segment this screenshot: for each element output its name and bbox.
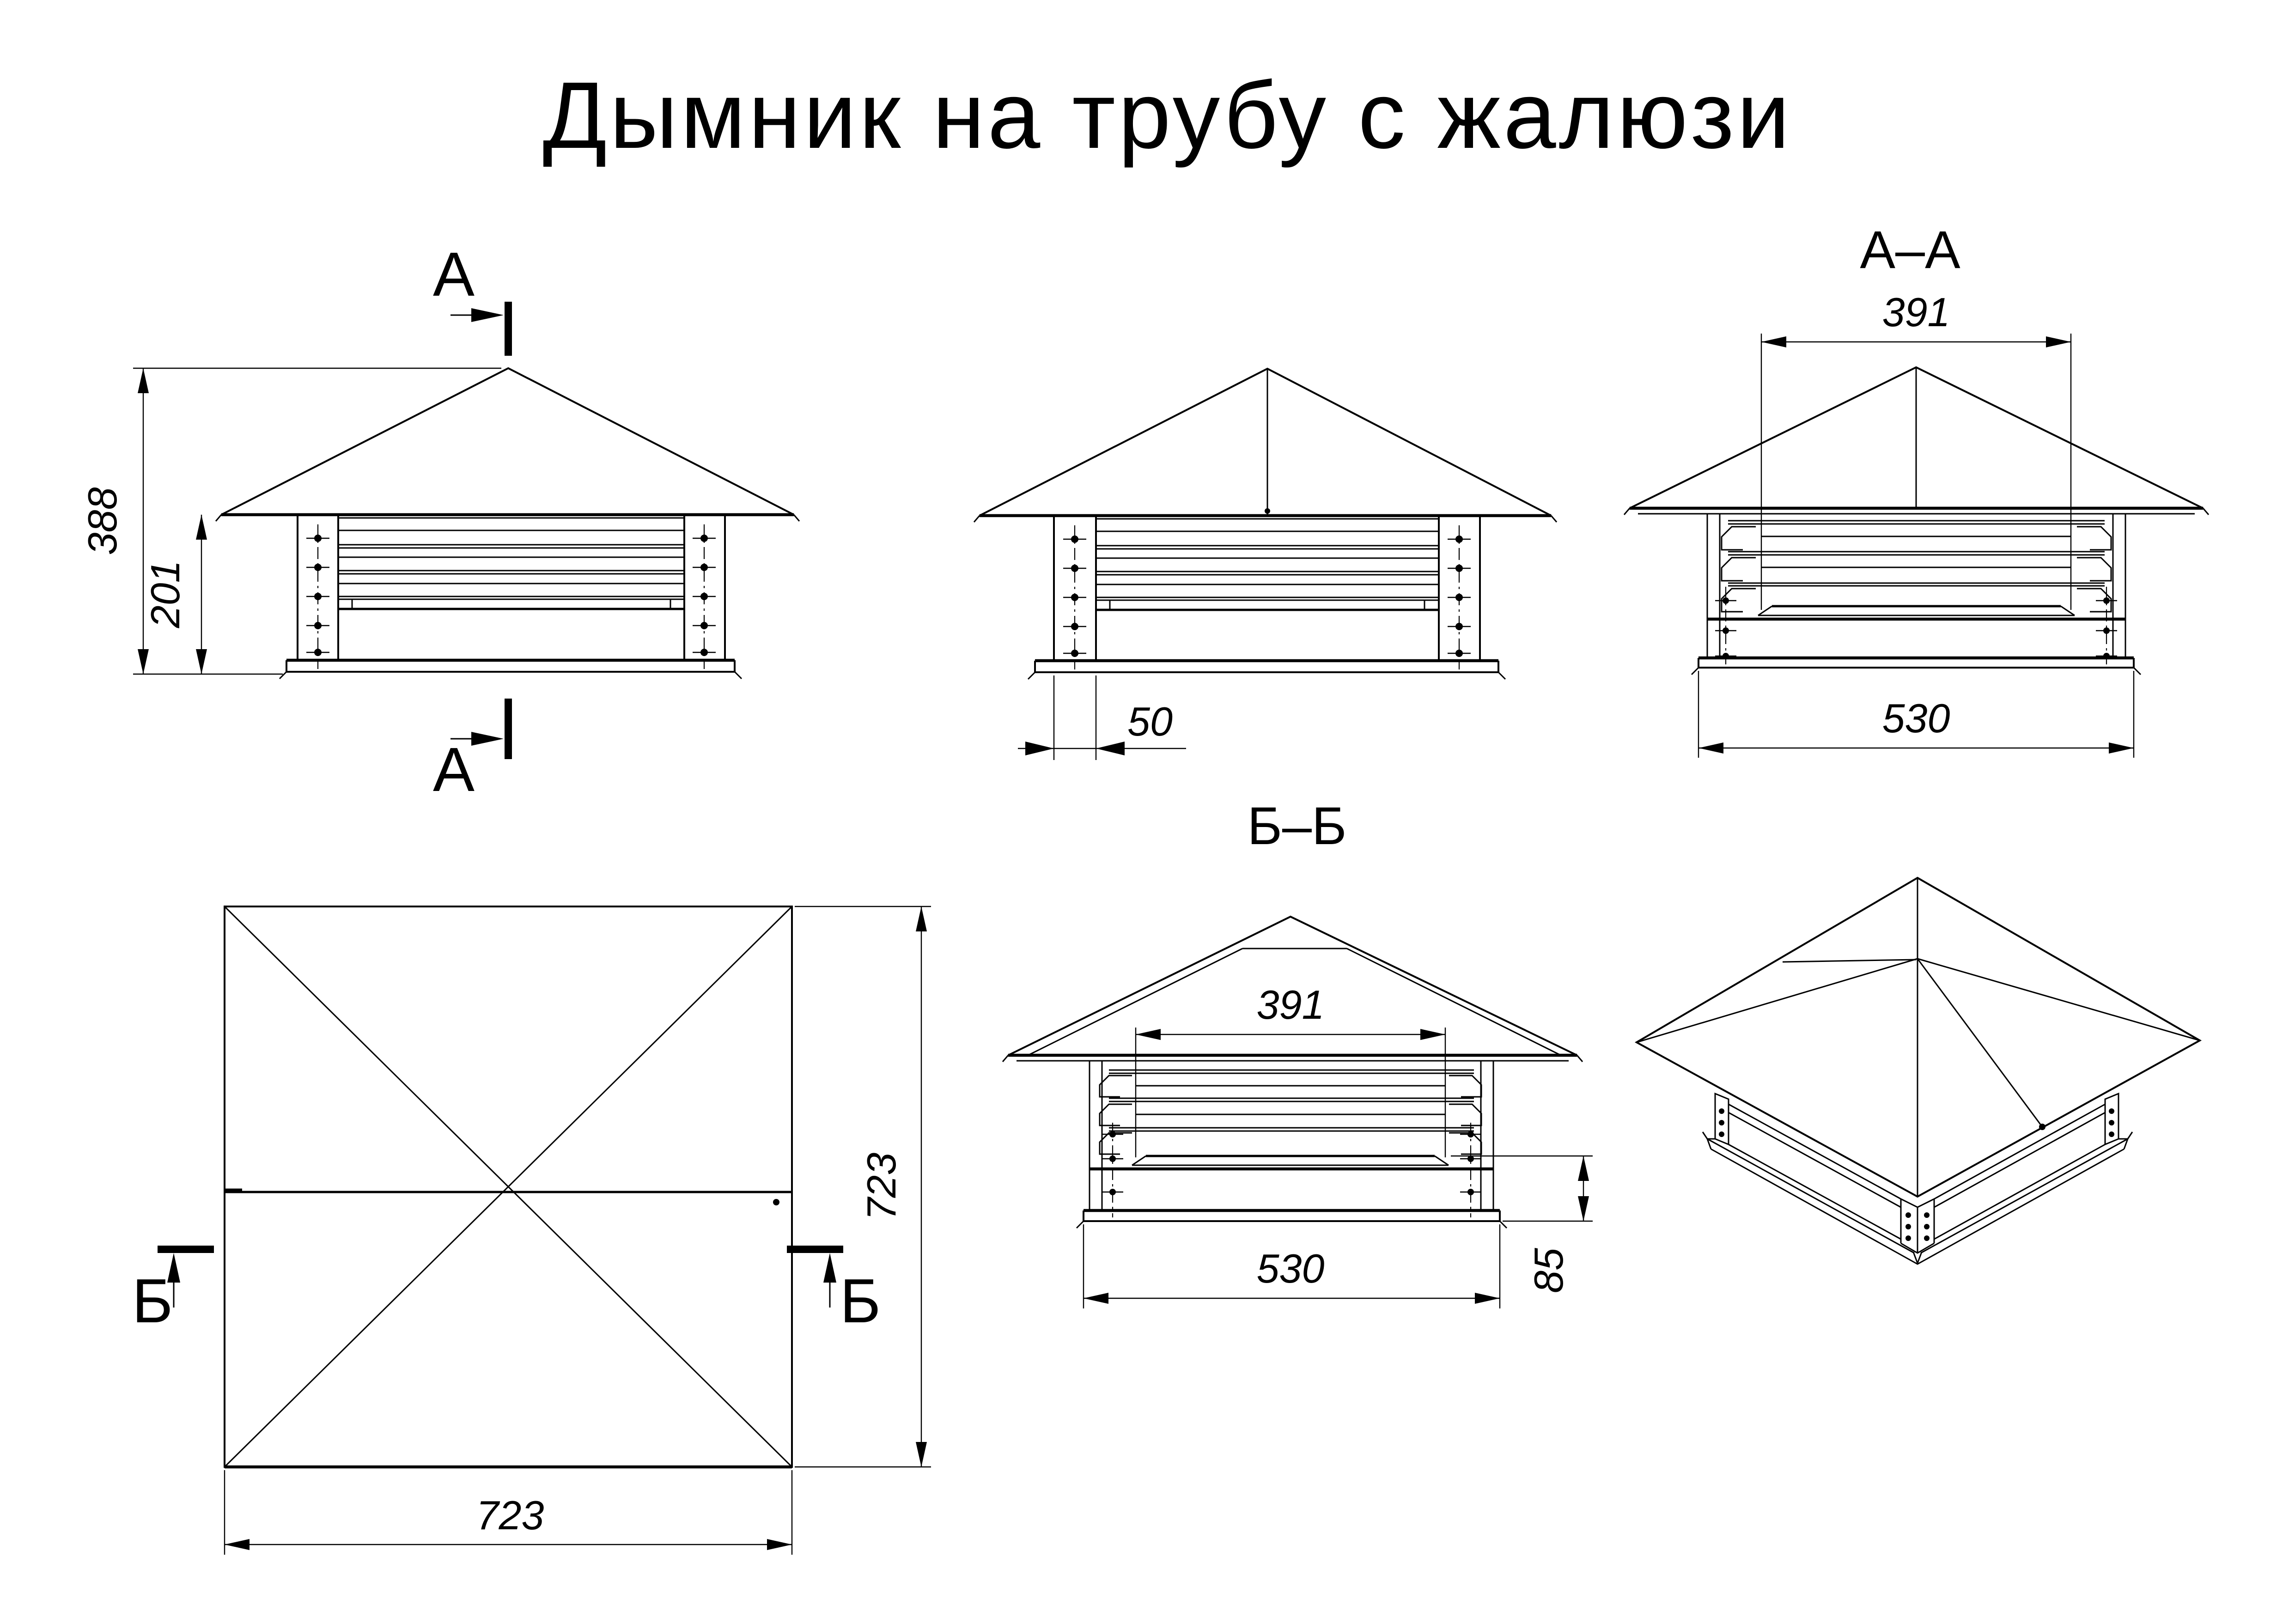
dim-overall-height: 388 — [79, 487, 125, 555]
page-title: Дымник на трубу с жалюзи — [543, 62, 1793, 168]
iso-roof — [1637, 878, 2200, 1197]
section-letter-a-bottom: А — [433, 735, 475, 804]
dimension-530-bb: 530 — [1084, 1224, 1500, 1308]
dim-body-height: 201 — [142, 560, 188, 629]
dim-plan-height: 723 — [858, 1153, 904, 1221]
section-bb-view: Б–Б — [1003, 797, 1593, 1308]
drawing-canvas: Дымник на трубу с жалюзи — [0, 0, 2295, 1624]
dimension-530-aa: 530 — [1698, 671, 2134, 758]
aa-roof — [1624, 367, 2209, 515]
front-louvers — [338, 518, 684, 609]
section-arrow-icon — [471, 732, 504, 746]
dimension-723-bottom: 723 — [225, 1470, 792, 1555]
bb-louver-section — [1090, 1061, 1493, 1210]
technical-drawing-sheet: Дымник на трубу с жалюзи — [0, 0, 2295, 1624]
side-base — [1028, 661, 1505, 679]
front-posts — [298, 515, 725, 660]
section-mark-b-right: Б — [787, 1249, 881, 1336]
dim-plan-width: 723 — [476, 1492, 544, 1538]
side-posts — [1054, 516, 1480, 661]
bb-base — [1077, 1210, 1507, 1228]
front-base — [280, 660, 742, 679]
front-roof — [216, 368, 799, 521]
side-view: 50 — [974, 369, 1557, 760]
dim-base-width-bb: 530 — [1257, 1246, 1325, 1291]
section-aa-title: А–А — [1860, 220, 1960, 280]
aa-base — [1692, 658, 2141, 675]
aa-louver-section — [1707, 514, 2125, 658]
side-roof — [974, 369, 1557, 522]
isometric-view — [1637, 878, 2200, 1264]
section-aa-view: А–А — [1624, 220, 2209, 758]
dimension-723-right: 723 — [795, 906, 931, 1467]
dimension-50: 50 — [1018, 675, 1186, 760]
section-mark-b-left: Б — [132, 1249, 214, 1336]
section-letter-b-left: Б — [132, 1266, 173, 1336]
plan-view: Б Б 723 723 — [132, 906, 931, 1555]
plan-outline — [225, 906, 792, 1467]
section-arrow-icon — [471, 308, 504, 322]
dim-skirt-height: 85 — [1526, 1247, 1571, 1293]
dim-post-width: 50 — [1127, 699, 1173, 744]
section-bb-title: Б–Б — [1248, 797, 1347, 856]
dim-inner-width-aa: 391 — [1882, 289, 1950, 335]
section-arrow-icon — [823, 1253, 836, 1283]
dim-inner-width-bb: 391 — [1257, 982, 1325, 1028]
section-mark-a-top: А — [433, 239, 508, 356]
front-view: А А 388 201 — [79, 239, 799, 804]
side-louvers — [1096, 519, 1439, 610]
dimension-201: 201 — [142, 515, 201, 674]
dimension-85: 85 — [1451, 1156, 1593, 1293]
section-mark-a-bottom: А — [433, 699, 508, 804]
section-letter-b-right: Б — [840, 1266, 881, 1336]
section-letter-a-top: А — [433, 239, 475, 309]
aa-rivets — [1715, 587, 2117, 664]
dim-base-width-aa: 530 — [1882, 695, 1950, 741]
